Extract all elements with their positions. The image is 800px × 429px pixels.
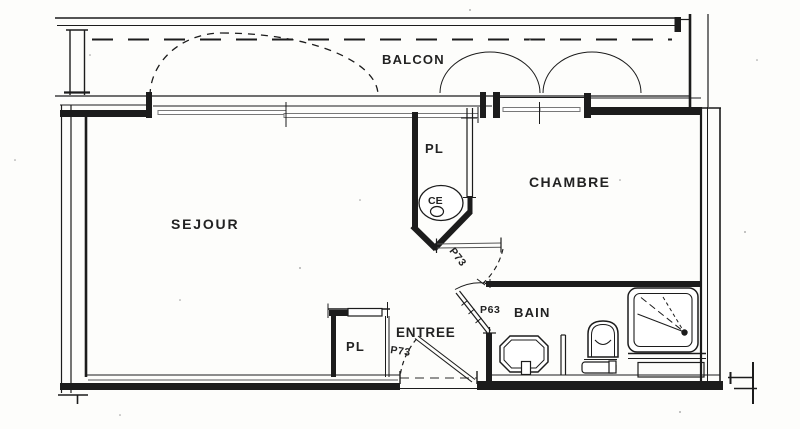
bain-wall-north (486, 281, 701, 287)
window-post (584, 93, 591, 118)
sink-tap (522, 362, 531, 375)
exterior-corner-marks (728, 362, 757, 404)
closet-wall-diag-left (413, 226, 437, 249)
chambre-window (499, 98, 584, 125)
door-swing-arc (481, 249, 503, 285)
room-label-chambre: CHAMBRE (529, 174, 610, 190)
room-label-sejour: SEJOUR (171, 216, 239, 232)
toilet (582, 321, 618, 373)
closet-ce: PL CE (413, 108, 478, 249)
window-post (146, 92, 152, 118)
balcony-pillar (64, 30, 90, 95)
facade-wall-right (591, 107, 701, 115)
sink (500, 336, 548, 375)
shower-drain (681, 329, 687, 335)
sejour-window-swing-arc-right (222, 33, 378, 95)
west-wall (58, 105, 88, 404)
south-wall (60, 371, 723, 390)
bathroom-fixtures (500, 288, 706, 377)
windows (153, 98, 584, 128)
chambre-window-swing-arc-right (543, 52, 641, 93)
bain-wall-west (486, 333, 492, 381)
room-label-bain: BAIN (514, 305, 551, 320)
equipment-label-ce: CE (428, 195, 443, 207)
fixture-divider (561, 335, 566, 375)
water-heater-valve (431, 207, 444, 217)
window-post (493, 92, 500, 118)
room-labels: SEJOUR CHAMBRE ENTREE BAIN (171, 174, 610, 340)
door-entree: P73 (390, 336, 475, 382)
door-label-entree: P73 (390, 344, 412, 359)
sejour-window-swing-arc-left (150, 33, 222, 96)
door-label-chambre: P73 (447, 245, 469, 269)
room-label-placard-entree: PL (346, 339, 365, 354)
room-label-entree: ENTREE (396, 325, 456, 340)
room-label-balcon: BALCON (382, 52, 445, 67)
floor-plan-sheet: BALCON (0, 0, 800, 429)
floor-plan-drawing: BALCON (0, 0, 800, 429)
door-chambre: P73 (437, 238, 504, 286)
chambre-window-swing-arc-left (440, 52, 540, 93)
window-post (480, 92, 486, 118)
closet-door-panel (348, 309, 382, 317)
room-label-placard-haut: PL (425, 141, 444, 156)
sejour-window (153, 102, 492, 127)
balcony: BALCON (55, 14, 708, 107)
facade-wall-left (60, 110, 150, 117)
door-bain: P63 (455, 279, 500, 339)
shower (628, 288, 706, 377)
door-label-bain: P63 (480, 304, 500, 316)
closet-entree: PL (328, 302, 390, 377)
closet-wall-west (331, 316, 336, 377)
